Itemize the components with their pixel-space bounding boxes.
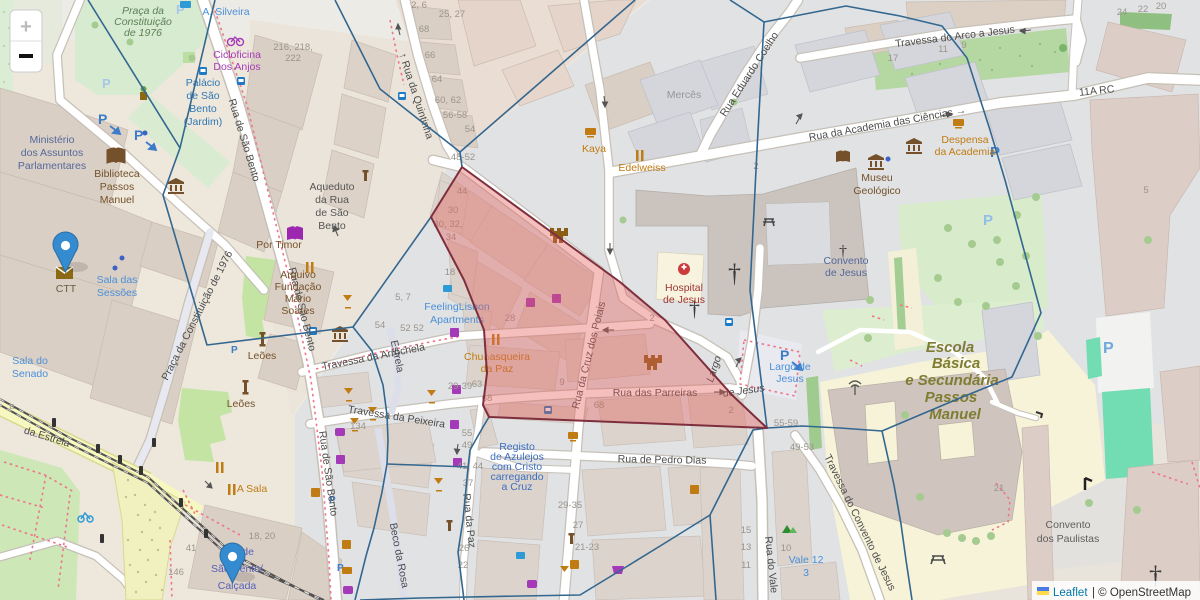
svg-text:11: 11 [938, 44, 948, 55]
svg-text:18: 18 [445, 267, 456, 278]
svg-text:A. Silveira: A. Silveira [202, 6, 249, 18]
svg-text:11: 11 [741, 560, 751, 571]
svg-text:26: 26 [459, 543, 470, 554]
svg-text:Paláciode SãoBento(Jardim): Paláciode SãoBento(Jardim) [184, 77, 223, 128]
svg-text:Kaya: Kaya [582, 143, 606, 155]
svg-text:18, 20: 18, 20 [249, 531, 275, 542]
svg-text:| © OpenStreetMap: | © OpenStreetMap [1092, 587, 1191, 599]
svg-text:49-53: 49-53 [790, 442, 814, 453]
svg-text:A Sala: A Sala [237, 483, 268, 495]
svg-text:10: 10 [781, 543, 792, 554]
svg-text:13: 13 [741, 542, 752, 553]
svg-text:†: † [728, 259, 741, 288]
svg-text:54: 54 [465, 124, 476, 135]
svg-text:P: P [231, 345, 238, 356]
svg-text:134: 134 [350, 421, 366, 432]
svg-text:29-39: 29-39 [448, 381, 472, 392]
svg-text:54: 54 [375, 320, 386, 331]
svg-text:52 52: 52 52 [400, 323, 424, 334]
svg-text:+: + [20, 16, 32, 38]
svg-text:25, 27: 25, 27 [439, 9, 465, 20]
svg-text:CicloficinaDos Anjos: CicloficinaDos Anjos [213, 49, 261, 73]
svg-text:P: P [134, 127, 143, 143]
svg-text:Mercês: Mercês [667, 89, 701, 101]
svg-text:56-58: 56-58 [443, 110, 467, 121]
svg-text:41: 41 [186, 543, 197, 554]
svg-text:63: 63 [472, 379, 483, 390]
svg-text:24: 24 [1117, 7, 1128, 18]
svg-text:Sala dasSessões: Sala dasSessões [97, 274, 138, 299]
svg-text:68: 68 [419, 24, 430, 35]
svg-text:Leões: Leões [248, 350, 277, 362]
svg-text:27: 27 [573, 520, 584, 531]
svg-text:a: a [9, 401, 15, 412]
svg-text:P: P [983, 212, 993, 229]
svg-text:BibliotecaPassosManuel: BibliotecaPassosManuel [94, 168, 140, 206]
svg-text:Sala doSenado: Sala doSenado [12, 355, 48, 380]
svg-text:21: 21 [994, 483, 1005, 494]
svg-text:Conventode Jesus: Conventode Jesus [824, 255, 869, 279]
svg-text:5, 7: 5, 7 [395, 292, 411, 303]
svg-text:37: 37 [463, 478, 474, 489]
svg-text:15: 15 [741, 525, 752, 536]
svg-text:66: 66 [425, 50, 436, 61]
svg-text:P: P [1103, 340, 1114, 357]
svg-text:P: P [98, 111, 107, 127]
svg-text:20: 20 [1156, 1, 1167, 12]
svg-text:Rua de Pedro Dias: Rua de Pedro Dias [618, 453, 707, 467]
svg-text:5: 5 [1143, 185, 1148, 196]
svg-text:Leões: Leões [227, 398, 256, 410]
svg-text:Despensada Academia: Despensada Academia [935, 134, 996, 158]
svg-text:64: 64 [432, 74, 443, 85]
svg-text:P: P [102, 76, 111, 91]
svg-text:55: 55 [462, 428, 473, 439]
svg-text:Edelweiss: Edelweiss [618, 162, 665, 174]
svg-text:21-23: 21-23 [575, 542, 599, 553]
svg-text:48-52: 48-52 [451, 152, 475, 163]
svg-text:Hospitalde Jesus: Hospitalde Jesus [663, 282, 705, 306]
svg-text:60, 62: 60, 62 [435, 95, 461, 106]
svg-text:29-35: 29-35 [558, 500, 582, 511]
svg-text:Leaflet: Leaflet [1053, 587, 1088, 599]
svg-text:22: 22 [1138, 4, 1149, 15]
svg-text:2, 6: 2, 6 [411, 0, 427, 11]
svg-text:9: 9 [961, 40, 966, 51]
svg-text:146: 146 [168, 567, 184, 578]
svg-text:Por Timor: Por Timor [256, 239, 302, 251]
svg-text:17: 17 [888, 53, 899, 64]
svg-text:CTT: CTT [56, 283, 77, 295]
